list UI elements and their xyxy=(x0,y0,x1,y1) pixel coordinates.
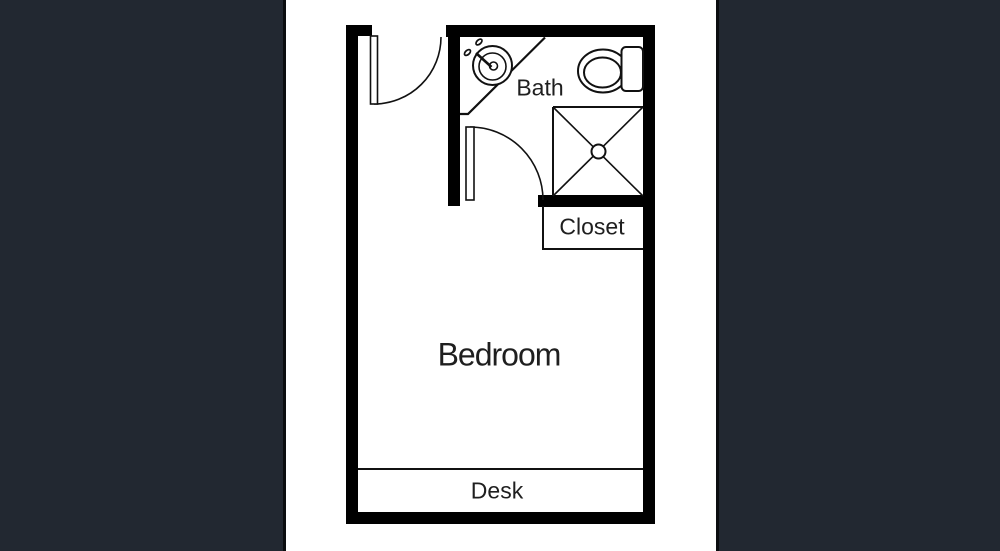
wall-top xyxy=(446,25,655,37)
toilet-icon xyxy=(578,47,643,93)
wall-left xyxy=(346,25,358,524)
faucet-handle-icon xyxy=(475,38,483,46)
entry-door xyxy=(371,36,442,104)
wall-right xyxy=(643,25,655,524)
shower-icon xyxy=(553,107,643,196)
shower-drain xyxy=(592,145,606,159)
bath-bottom-wall xyxy=(538,195,655,207)
bath-door-swing-icon xyxy=(470,127,543,200)
floor-plan-image: Bath Closet Bedroom Desk xyxy=(0,0,1000,551)
bathroom-door xyxy=(466,127,543,200)
floor-plan-canvas xyxy=(0,0,1000,551)
faucet-handle-icon xyxy=(463,49,471,57)
toilet-tank xyxy=(622,47,644,91)
bedroom-room-label: Bedroom xyxy=(438,337,561,374)
desk-room-label: Desk xyxy=(471,478,523,505)
outer-walls xyxy=(346,25,655,524)
bath-partition-wall xyxy=(448,25,460,206)
bath-room-label: Bath xyxy=(516,75,563,102)
entry-door-leaf xyxy=(371,36,378,104)
bath-door-leaf xyxy=(466,127,474,200)
closet-room-label: Closet xyxy=(559,214,624,241)
wall-bottom xyxy=(346,512,655,524)
entry-door-swing-icon xyxy=(374,37,441,104)
